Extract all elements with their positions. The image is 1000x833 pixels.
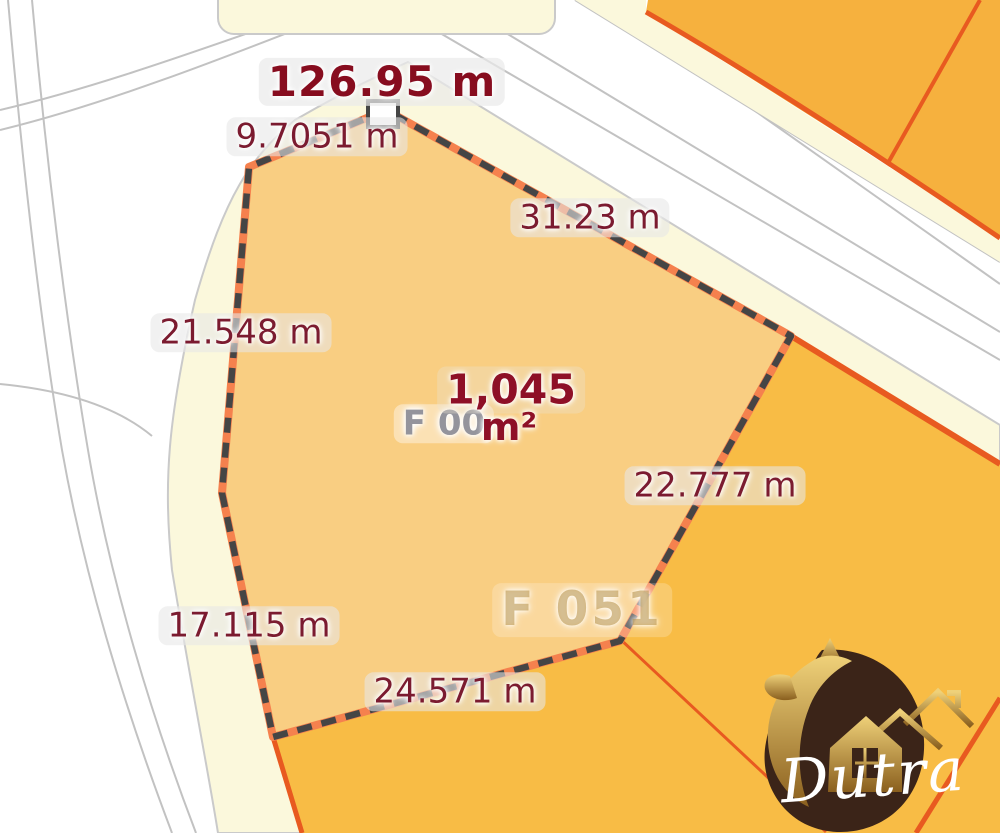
parcel-code-label: F 051 bbox=[492, 583, 672, 637]
brand-logo: Dutra bbox=[745, 628, 1000, 833]
brand-wordmark: Dutra bbox=[778, 735, 968, 818]
cadastral-map-image[interactable]: 126.95 m 9.7051 m 31.23 m 21.548 m 22.77… bbox=[0, 0, 1000, 833]
road-verge-top-blob bbox=[218, 0, 555, 34]
measurement-label-southwest: 17.115 m bbox=[159, 606, 340, 645]
measurement-label-northwest: 9.7051 m bbox=[227, 117, 408, 156]
measurement-label-east: 22.777 m bbox=[625, 466, 806, 505]
area-unit: m² bbox=[472, 406, 546, 450]
perimeter-label: 126.95 m bbox=[259, 58, 505, 106]
measurement-label-west: 21.548 m bbox=[151, 313, 332, 352]
measurement-label-northeast: 31.23 m bbox=[510, 198, 669, 237]
measurement-label-south: 24.571 m bbox=[365, 672, 546, 711]
